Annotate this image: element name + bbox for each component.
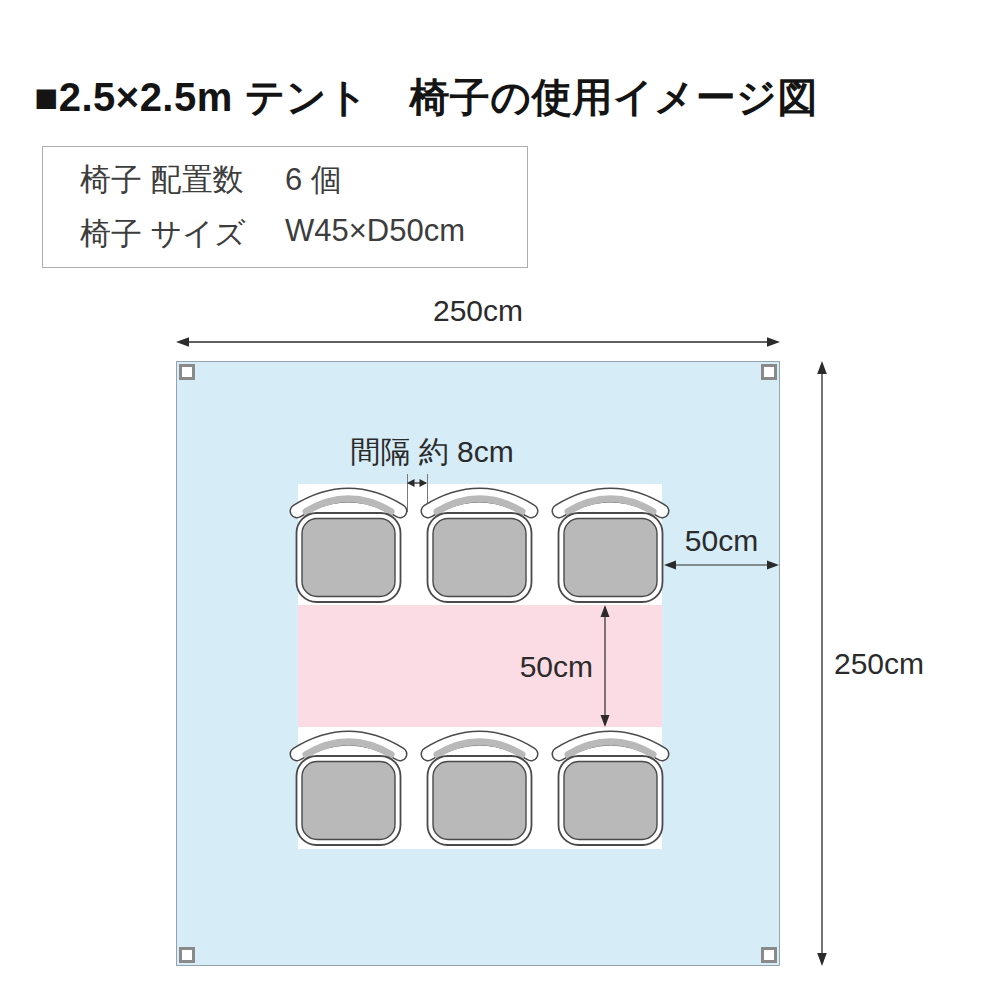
- tent-canvas: 間隔 約 8cm 50cm 50cm: [176, 361, 780, 966]
- chair: [554, 485, 667, 603]
- spec-value-size: W45×D50cm: [285, 213, 465, 255]
- tent-width-label: 250cm: [176, 294, 780, 328]
- chair-gap-label: 間隔 約 8cm: [282, 432, 582, 473]
- chair: [292, 728, 405, 846]
- spec-row-size: 椅子 サイズ W45×D50cm: [80, 213, 527, 255]
- spec-value-count: 6 個: [285, 159, 342, 201]
- page-root: { "header": { "title": "■2.5×2.5m テント 椅子…: [0, 0, 1000, 1000]
- page-title: ■2.5×2.5m テント 椅子の使用イメージ図: [34, 70, 818, 125]
- tent-corner-fitting: [761, 364, 777, 380]
- spec-row-count: 椅子 配置数 6 個: [80, 159, 527, 201]
- chair: [423, 728, 536, 846]
- chair: [292, 485, 405, 603]
- spec-box: 椅子 配置数 6 個 椅子 サイズ W45×D50cm: [42, 146, 528, 268]
- tent-height-arrow-icon: [815, 361, 829, 966]
- spec-label-count: 椅子 配置数: [80, 159, 285, 201]
- row-gap-label: 50cm: [483, 650, 593, 684]
- spec-label-size: 椅子 サイズ: [80, 213, 285, 255]
- side-gap-label: 50cm: [664, 524, 779, 558]
- tent-height-label: 250cm: [834, 647, 924, 681]
- side-gap-arrow-icon: [664, 558, 779, 572]
- chair: [423, 485, 536, 603]
- tent-corner-fitting: [761, 947, 777, 963]
- tent-width-arrow-icon: [176, 335, 780, 349]
- row-gap-arrow-icon: [598, 605, 612, 727]
- chair: [554, 728, 667, 846]
- tent-corner-fitting: [179, 364, 195, 380]
- tent-corner-fitting: [179, 947, 195, 963]
